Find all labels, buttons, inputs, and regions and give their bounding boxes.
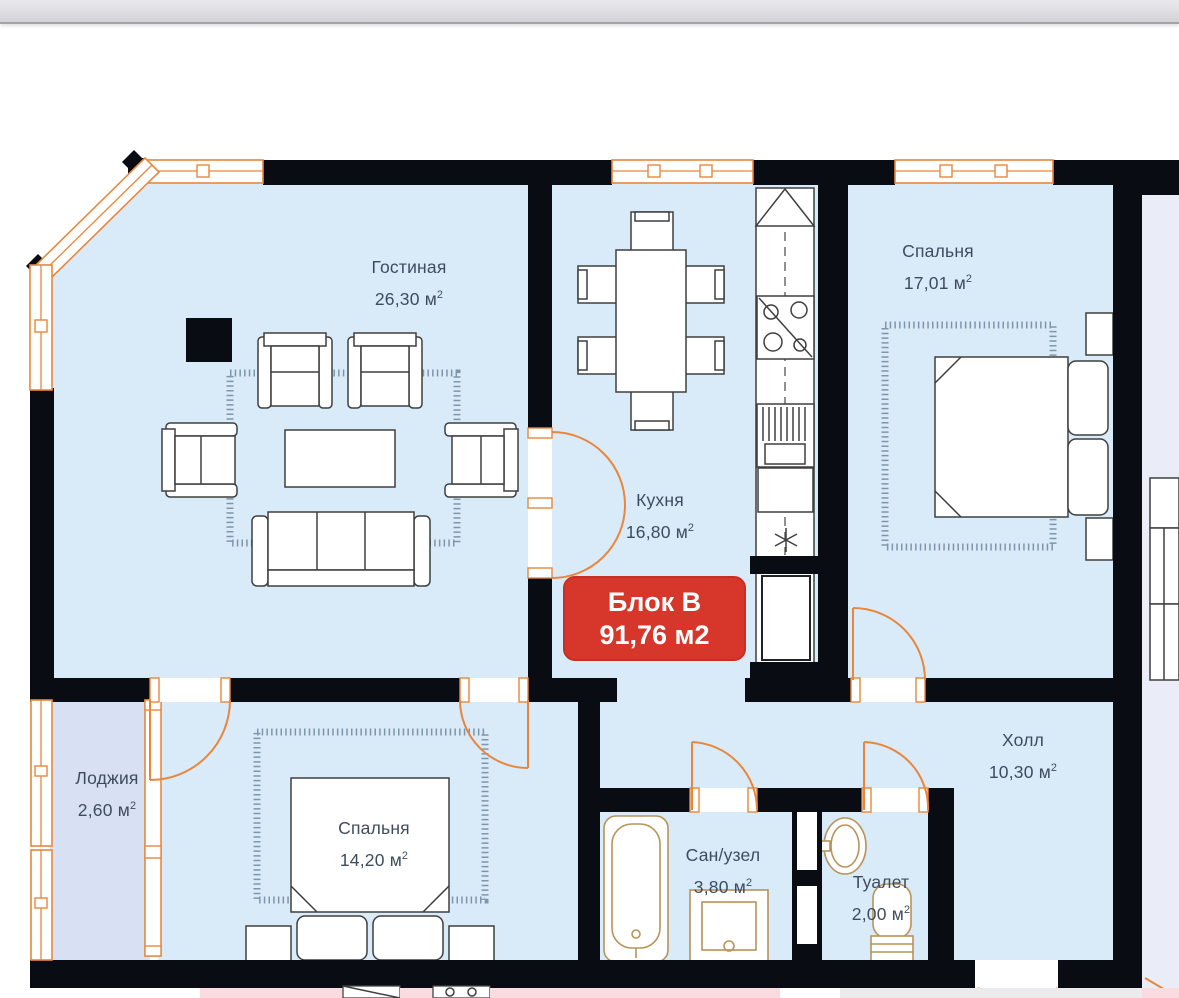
sink-icon	[690, 890, 768, 962]
loggia-partition	[145, 700, 161, 956]
block-name: Блок В	[608, 586, 701, 619]
room-label-bedroom2: Спальня 14,20 м2	[338, 818, 410, 870]
pillow	[373, 916, 443, 960]
stove-icon	[757, 296, 814, 359]
room-label-bedroom1: Спальня 17,01 м2	[902, 241, 974, 293]
block-area-badge: Блок В 91,76 м2	[563, 576, 746, 661]
column	[186, 318, 232, 362]
kitchen-sink-icon	[757, 404, 814, 512]
room-label-toilet: Туалет 2,00 м2	[852, 872, 910, 924]
pillow	[297, 916, 367, 960]
kitchen-hall-passage	[617, 678, 745, 702]
wardrobe-icon	[1150, 478, 1179, 680]
pillow	[1068, 439, 1108, 515]
room-label-bathroom: Сан/узел 3,80 м2	[686, 845, 761, 897]
armchair-icon	[162, 423, 237, 497]
window-top-bar	[0, 0, 1179, 24]
window	[612, 160, 753, 183]
window	[30, 265, 52, 390]
armchair-icon	[445, 423, 518, 497]
window	[895, 160, 1053, 183]
loggia-floor	[50, 700, 150, 962]
window	[145, 160, 263, 183]
loggia-window	[31, 700, 52, 960]
room-label-kitchen: Кухня 16,80 м2	[626, 490, 694, 542]
sofa-icon	[252, 512, 430, 586]
nightstand-icon	[449, 926, 494, 962]
room-label-living: Гостиная 26,30 м2	[371, 257, 446, 309]
nightstand-icon	[1086, 518, 1113, 560]
block-total-area: 91,76 м2	[599, 619, 709, 652]
nightstand-icon	[246, 926, 291, 962]
armchair-icon	[258, 333, 332, 408]
floorplan-svg	[0, 0, 1179, 998]
nightstand-icon	[1086, 313, 1113, 355]
floorplan-image[interactable]: Гостиная 26,30 м2 Кухня 16,80 м2 Спальня…	[0, 0, 1179, 998]
stairwell-floor	[840, 988, 1142, 998]
armchair-icon	[348, 333, 422, 408]
bathtub-icon	[604, 816, 668, 962]
screen: Гостиная 26,30 м2 Кухня 16,80 м2 Спальня…	[0, 0, 1179, 998]
room-label-loggia: Лоджия 2,60 м2	[75, 768, 138, 820]
room-label-hall: Холл 10,30 м2	[989, 730, 1057, 782]
pillow	[1068, 361, 1108, 435]
coffee-table-icon	[285, 430, 395, 487]
